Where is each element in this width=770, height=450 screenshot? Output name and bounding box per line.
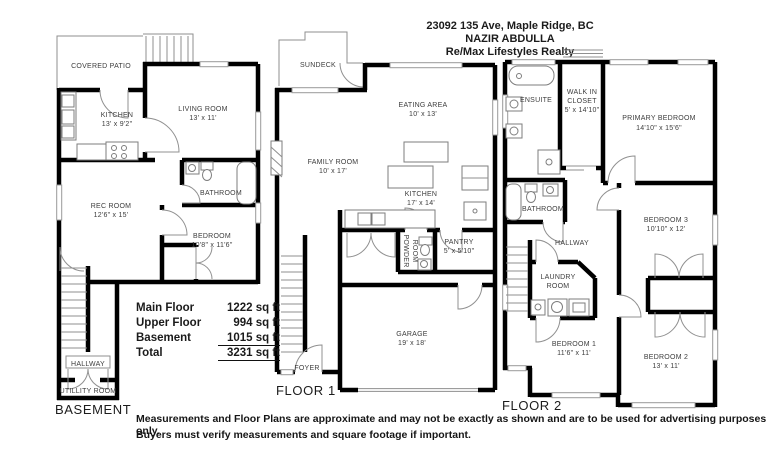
area-row-total: Total 3231 sq ft xyxy=(136,346,280,361)
room-dims-living-room: 13' x 11' xyxy=(189,115,216,122)
room-label-ensuite: ENSUITE xyxy=(520,97,552,104)
room-label-utility-room: UTILLITY ROOM xyxy=(60,388,117,395)
room-label-bedroom3: BEDROOM 3 xyxy=(644,217,688,224)
room-dims-basement-kitchen: 13' x 9'2" xyxy=(102,121,133,128)
room-label-garage: GARAGE xyxy=(396,331,428,338)
floor1-sundeck-outline xyxy=(279,32,364,87)
room-dims-bedroom2: 13' x 11' xyxy=(652,363,679,370)
room-label-primary-bedroom: PRIMARY BEDROOM xyxy=(622,115,696,122)
room-label-basement-bathroom: BATHROOM xyxy=(200,190,242,197)
room-label-pantry: PANTRY xyxy=(444,239,473,246)
floor1-stairs-icon xyxy=(281,256,303,352)
floor1-doors xyxy=(295,208,482,372)
room-label-bedroom1: BEDROOM 1 xyxy=(552,341,596,348)
room-label-powder-room-2: ROOM xyxy=(411,240,418,263)
disclaimer-line2: Buyers must verify measurements and squa… xyxy=(136,429,471,441)
room-label-laundry-1: LAUNDRY xyxy=(540,274,575,281)
room-label-powder-room-1: POWDER xyxy=(402,235,409,268)
floor2-room-labels: ENSUITE WALK IN CLOSET 5' x 14'10" PRIMA… xyxy=(520,89,696,370)
room-label-foyer: FOYER xyxy=(294,365,319,372)
room-dims-family-room: 10' x 17' xyxy=(319,168,347,175)
area-row-basement: Basement 1015 sq ft xyxy=(136,331,280,346)
area-table: Main Floor 1222 sq ft Upper Floor 994 sq… xyxy=(136,301,280,361)
room-label-living-room: LIVING ROOM xyxy=(178,106,227,113)
floorplan-sheet: 23092 135 Ave, Maple Ridge, BC NAZIR ABD… xyxy=(0,0,770,450)
room-dims-bedroom3: 10'10" x 12' xyxy=(647,226,686,233)
room-label-basement-hallway: HALLWAY xyxy=(71,361,105,368)
room-label-walkin-2: CLOSET xyxy=(567,98,597,105)
area-row-main-floor: Main Floor 1222 sq ft xyxy=(136,301,280,316)
room-dims-eating-area: 10' x 13' xyxy=(409,111,437,118)
room-dims-garage: 19' x 18' xyxy=(398,340,426,347)
room-label-family-room: FAMILY ROOM xyxy=(308,159,359,166)
room-dims-pantry: 5' x 5'10" xyxy=(444,248,475,255)
room-label-basement-kitchen: KITCHEN xyxy=(101,112,133,119)
room-label-sundeck: SUNDECK xyxy=(300,62,336,69)
room-label-basement-bedroom: BEDROOM xyxy=(193,233,231,240)
room-dims-walkin: 5' x 14'10" xyxy=(565,107,600,114)
room-label-walkin-1: WALK IN xyxy=(567,89,597,96)
room-label-laundry-2: ROOM xyxy=(547,283,570,290)
basement-plan-svg: COVERED PATIO KITCHEN 13' x 9'2" LIVING … xyxy=(0,0,770,450)
room-dims-floor1-kitchen: 17' x 14' xyxy=(407,200,435,207)
room-dims-bedroom1: 11'6" x 11' xyxy=(557,350,591,357)
room-label-floor2-hallway: HALLWAY xyxy=(555,240,589,247)
room-label-bedroom2: BEDROOM 2 xyxy=(644,354,688,361)
room-label-covered-patio: COVERED PATIO xyxy=(71,63,131,70)
floor2-stairs-icon xyxy=(506,247,528,311)
floor1-title: FLOOR 1 xyxy=(276,383,336,398)
room-dims-basement-bedroom: 10'8" x 11'6" xyxy=(191,242,232,249)
room-label-floor2-bathroom: BATHROOM xyxy=(522,206,564,213)
room-label-eating-area: EATING AREA xyxy=(399,102,448,109)
basement-title: BASEMENT xyxy=(55,402,131,417)
room-dims-primary-bedroom: 14'10" x 15'6" xyxy=(636,125,682,132)
room-label-floor1-kitchen: KITCHEN xyxy=(405,191,437,198)
room-label-rec-room: REC ROOM xyxy=(91,203,132,210)
room-dims-rec-room: 12'6" x 15' xyxy=(94,212,129,219)
area-row-upper-floor: Upper Floor 994 sq ft xyxy=(136,316,280,331)
floor2-title: FLOOR 2 xyxy=(502,398,562,413)
